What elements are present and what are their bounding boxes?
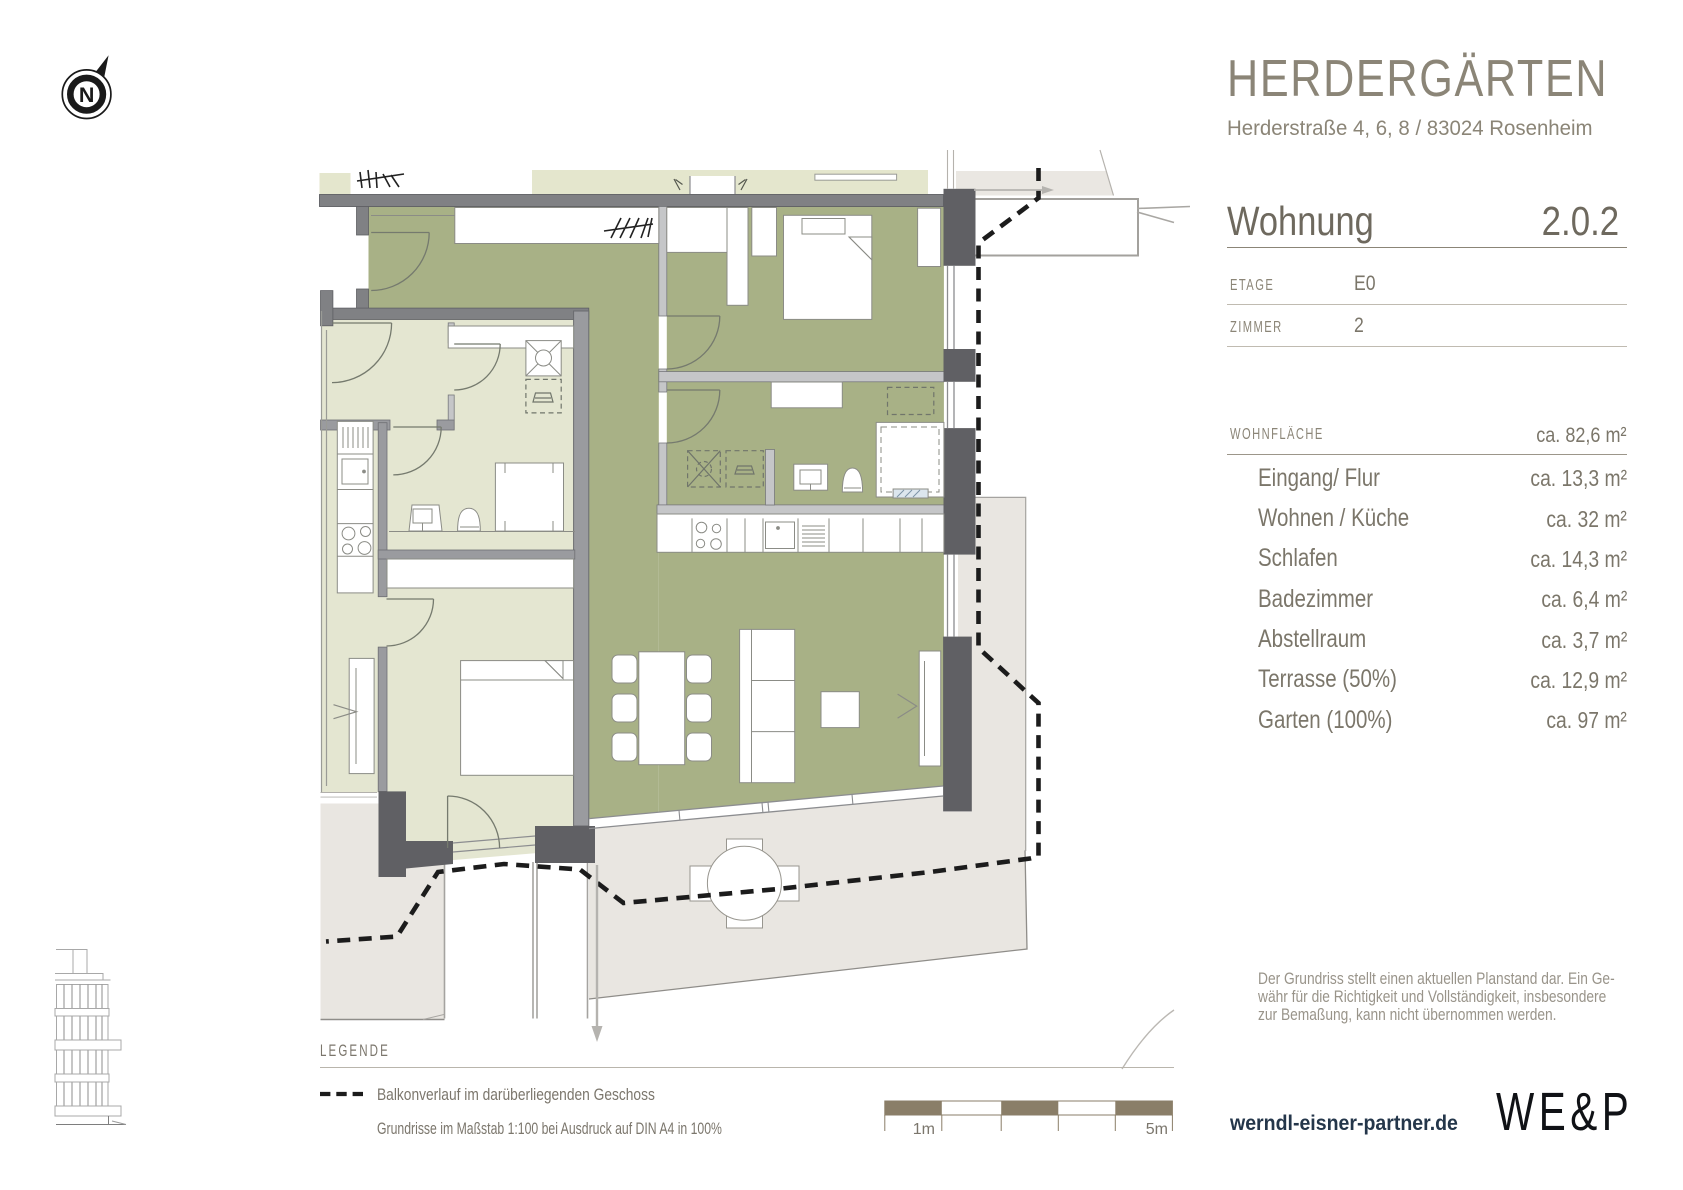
svg-text:N: N [79,83,95,107]
